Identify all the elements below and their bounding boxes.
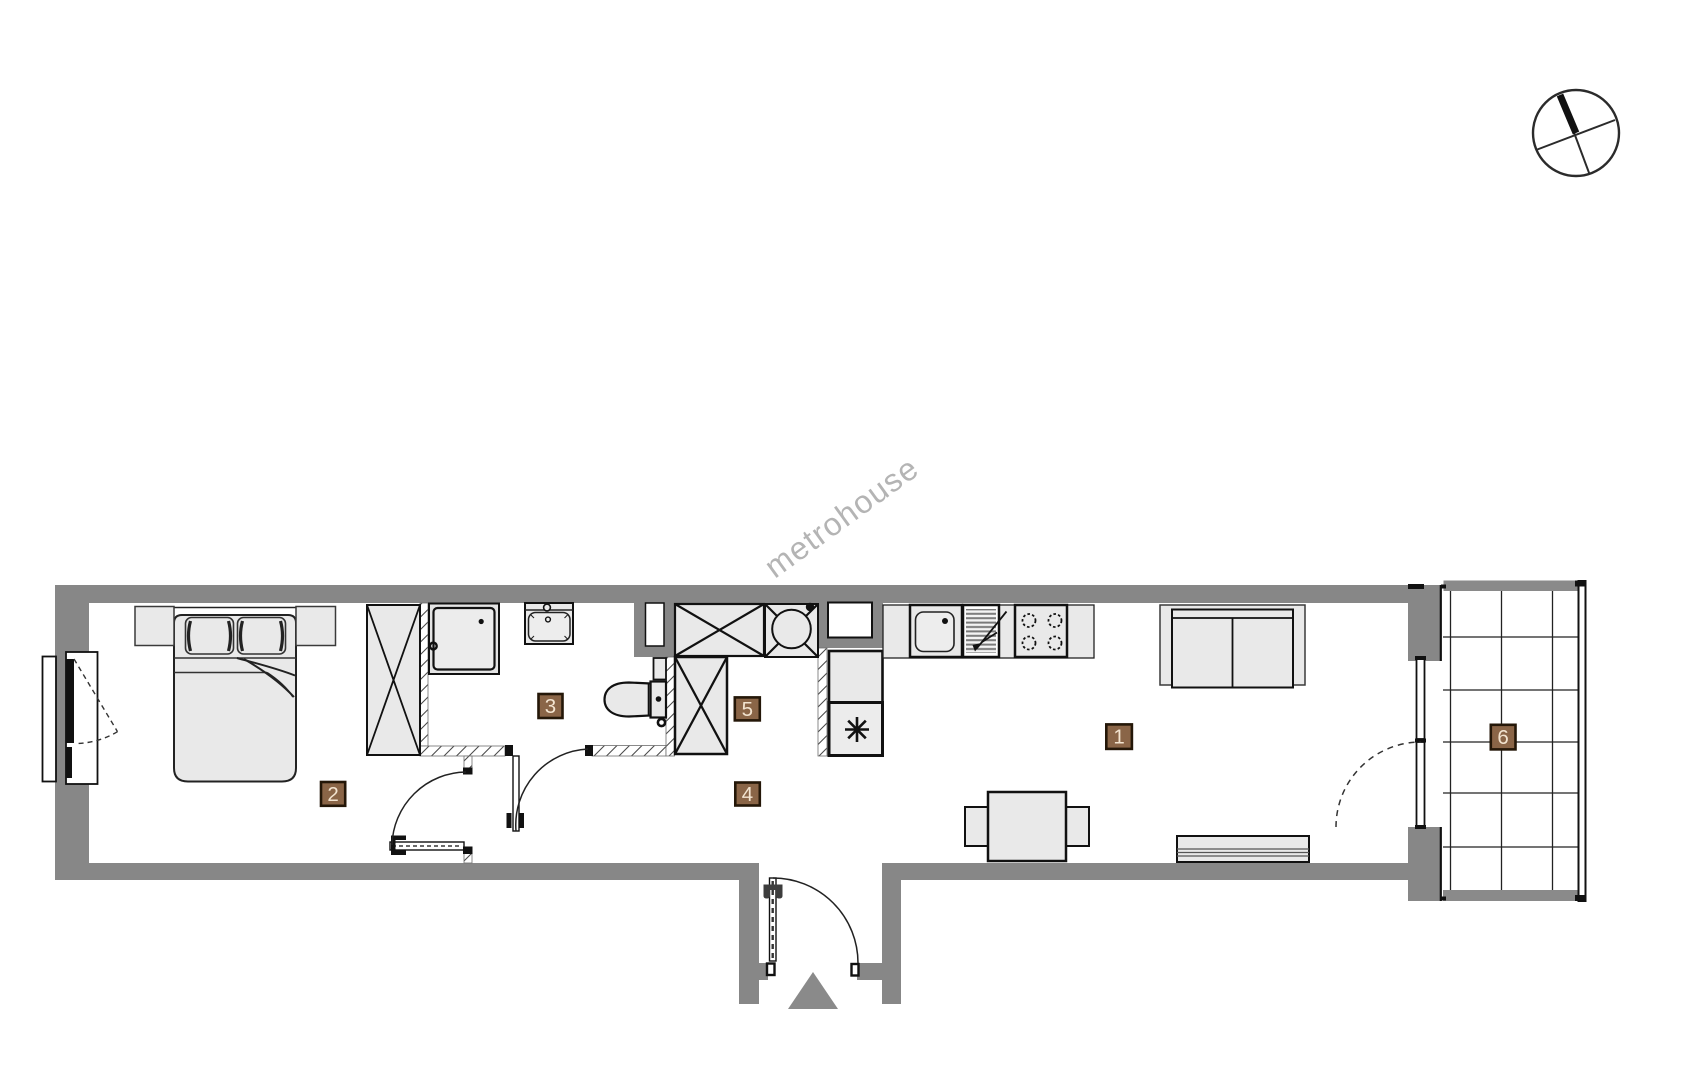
- svg-text:5: 5: [742, 698, 753, 721]
- svg-text:3: 3: [545, 695, 556, 718]
- svg-text:4: 4: [742, 783, 753, 806]
- svg-text:2: 2: [327, 783, 338, 806]
- svg-text:6: 6: [1497, 726, 1508, 749]
- svg-text:1: 1: [1113, 726, 1124, 749]
